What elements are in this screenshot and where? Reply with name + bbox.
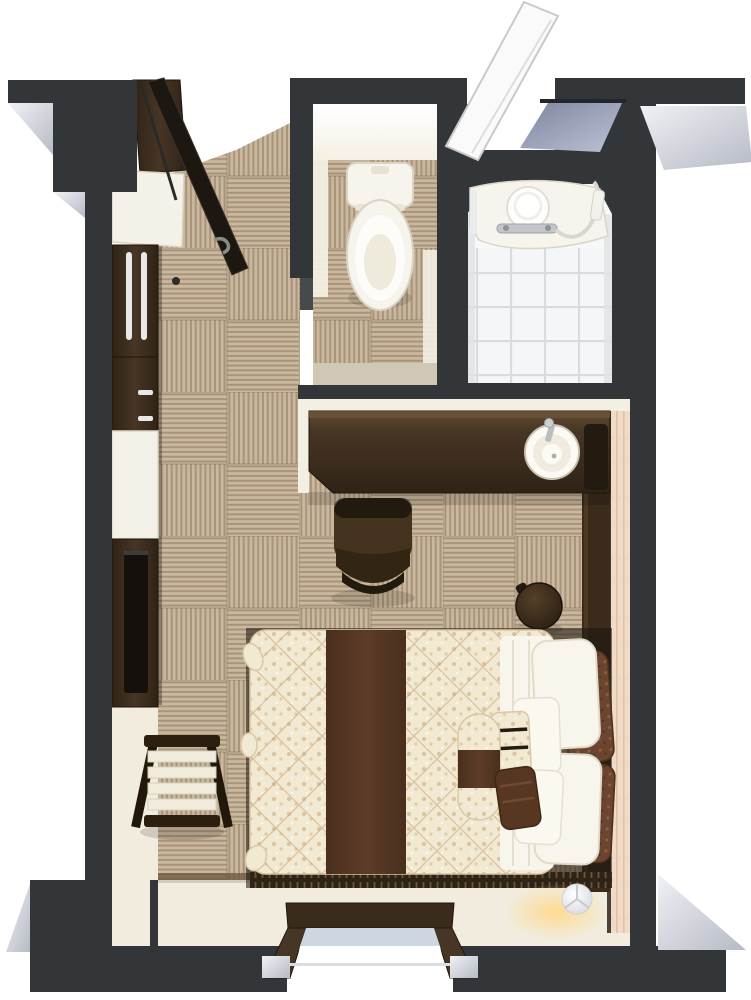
toilet-room bbox=[347, 163, 413, 310]
toilet-flush-button bbox=[371, 166, 389, 174]
window-sill-left bbox=[262, 956, 290, 978]
floorplan-stage bbox=[0, 0, 751, 1000]
wall-top-left-block bbox=[53, 100, 137, 192]
toilet-room-left-wall-face bbox=[313, 152, 328, 297]
small-brown-cushion bbox=[494, 766, 542, 831]
wall-right-stem bbox=[630, 100, 656, 948]
window-sill-right bbox=[450, 956, 478, 978]
door-stopper bbox=[172, 277, 180, 285]
bevel-top-left-small bbox=[53, 192, 85, 218]
partition-wall-endcap bbox=[298, 399, 309, 493]
window-opening bbox=[294, 946, 446, 974]
wardrobe bbox=[112, 245, 158, 357]
wall-bottom-bar-right bbox=[453, 946, 726, 992]
wall-bottom-bar-left bbox=[30, 946, 287, 992]
rack-frame-top bbox=[144, 735, 220, 747]
rack-strap bbox=[148, 751, 216, 762]
bevel-bottom-right-slab bbox=[658, 874, 746, 950]
desk-top-highlight bbox=[309, 411, 610, 418]
toilet-room-threshold bbox=[313, 363, 437, 385]
desk-side-box bbox=[584, 424, 608, 490]
console-dark-panel bbox=[124, 551, 148, 693]
double-bed bbox=[239, 628, 615, 888]
partition-wall-trim bbox=[298, 399, 640, 411]
faucet-knob bbox=[503, 225, 509, 231]
cabinet-handle bbox=[138, 390, 153, 395]
window-glass bbox=[300, 928, 440, 946]
bathroom-wall-shadow bbox=[467, 214, 475, 383]
wall-bottom-left-foot bbox=[30, 880, 112, 950]
console-panel-trim bbox=[124, 551, 148, 555]
wall-inner-step bbox=[150, 880, 158, 948]
duvet-corner-tuft bbox=[241, 733, 257, 757]
partition-wall bbox=[298, 385, 640, 400]
bed-runner bbox=[326, 630, 406, 874]
toilet bbox=[347, 163, 413, 310]
wall-toilet-left bbox=[290, 78, 313, 278]
window bbox=[262, 903, 478, 978]
toilet-room-back-wall-face bbox=[313, 104, 437, 166]
bevel-top-left bbox=[8, 103, 53, 155]
rack-strap bbox=[148, 799, 216, 810]
window-sill-rail bbox=[290, 963, 450, 966]
lamp-glow bbox=[504, 884, 608, 940]
rack-strap bbox=[148, 783, 216, 794]
bevel-top-right-slab bbox=[640, 106, 751, 170]
basin-drain bbox=[552, 454, 557, 459]
white-cabinet bbox=[112, 431, 158, 539]
wardrobe-handle bbox=[126, 252, 132, 340]
wall-toilet-left-thin bbox=[300, 270, 313, 310]
wall-toilet-top-bar bbox=[290, 78, 467, 104]
wall-left-stem bbox=[85, 190, 112, 884]
bathroom bbox=[445, 150, 640, 385]
bathroom-mirror bbox=[470, 190, 477, 234]
floor-lamp bbox=[504, 884, 608, 940]
toilet-room-right-wall-face bbox=[423, 250, 437, 368]
bevel-bottom-left bbox=[6, 884, 30, 952]
bathroom-tile-floor bbox=[467, 248, 612, 383]
cabinet-handle bbox=[138, 416, 153, 421]
bolster-cushion bbox=[458, 714, 500, 820]
rack-frame-bottom bbox=[144, 815, 220, 827]
faucet-knob bbox=[545, 225, 551, 231]
toilet-bowl-inner bbox=[364, 234, 396, 290]
vanity-basin-glow bbox=[515, 193, 541, 219]
rack-strap bbox=[148, 767, 216, 778]
window-frame-top bbox=[286, 903, 454, 928]
bathroom-wall-shadow bbox=[604, 214, 612, 383]
floorplan-render bbox=[0, 0, 751, 1000]
stool bbox=[515, 582, 563, 635]
wardrobe-handle bbox=[141, 252, 147, 340]
wall-top-left-bar bbox=[8, 80, 137, 103]
